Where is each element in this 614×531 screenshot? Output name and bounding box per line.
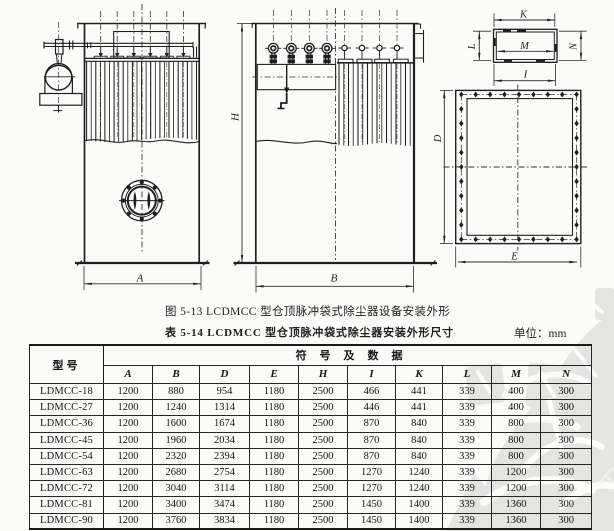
svg-text:K: K [519,10,528,21]
svg-text:E: E [510,252,518,263]
svg-text:L: L [467,43,478,50]
svg-text:I: I [523,70,528,81]
svg-text:M: M [519,41,530,52]
svg-text:B: B [331,273,338,285]
svg-text:N: N [569,42,580,51]
svg-text:D: D [433,134,444,143]
svg-text:H: H [230,112,242,122]
svg-text:A: A [136,273,144,285]
